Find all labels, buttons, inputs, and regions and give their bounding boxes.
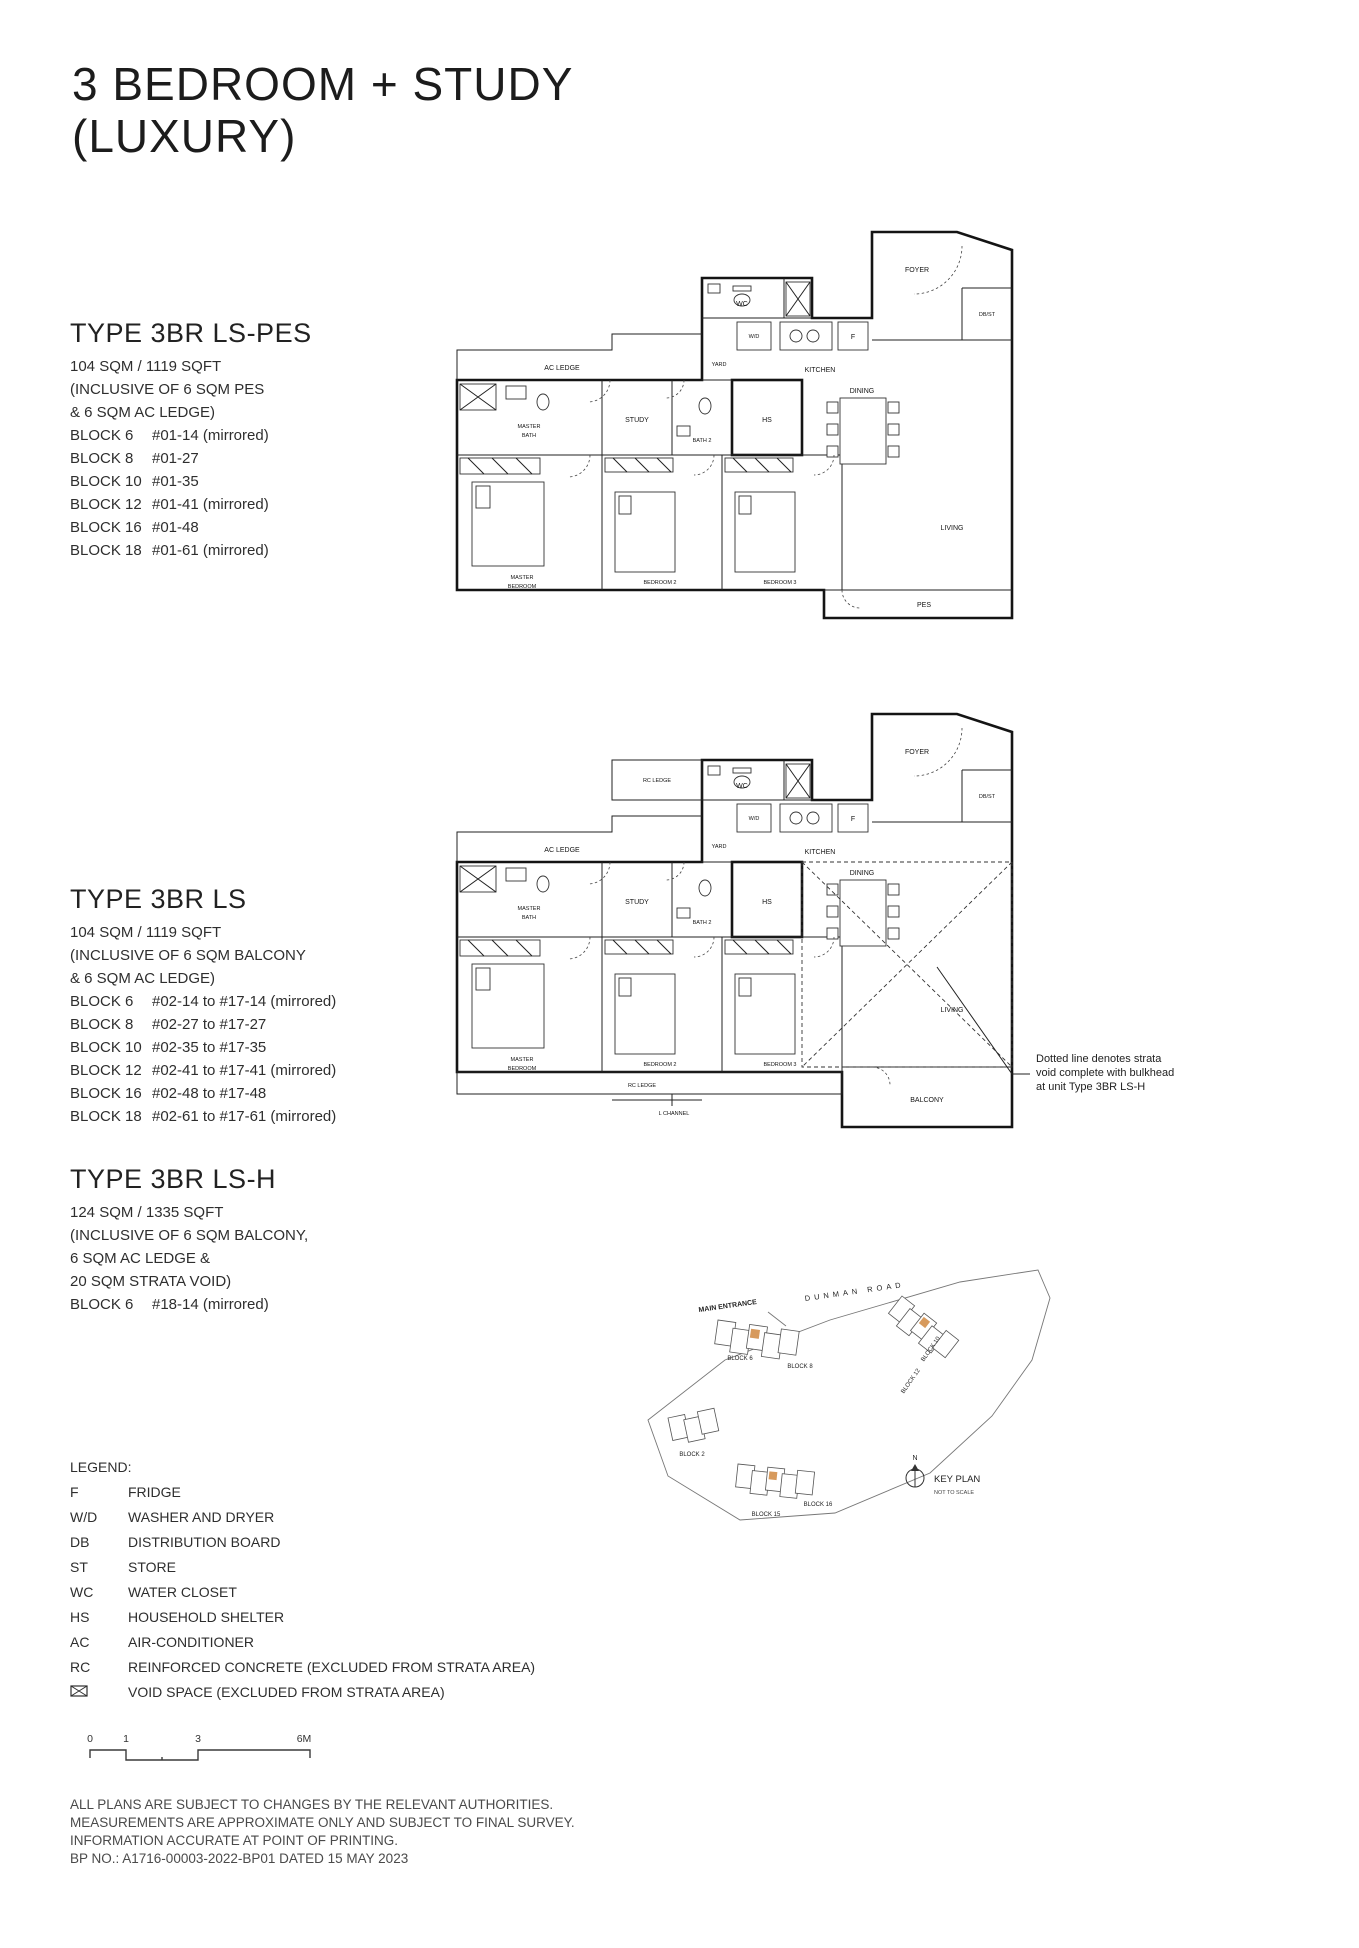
outer-walls — [457, 714, 1012, 1127]
room-label-wd: W/D — [749, 334, 760, 340]
block-row: BLOCK 16#02-48 to #17-48 — [70, 1082, 400, 1105]
room-label-master-bath: BATH — [522, 433, 536, 439]
keyplan-block-8: BLOCK 8 — [787, 1364, 813, 1370]
room-label-balcony: BALCONY — [910, 1097, 944, 1104]
block-row: BLOCK 10#02-35 to #17-35 — [70, 1036, 400, 1059]
type-info-3br-ls-pes: TYPE 3BR LS-PES 104 SQM / 1119 SQFT (INC… — [70, 318, 400, 562]
floorplan-drawing-3br-ls-pes: WC W/D F KITCHEN YARD FOYER DB/ST AC LED… — [372, 230, 1012, 622]
keyplan-block-12: BLOCK 12 — [900, 1367, 922, 1394]
room-label-hs: HS — [762, 899, 772, 906]
type-name: TYPE 3BR LS-PES — [70, 318, 400, 349]
room-label-yard: YARD — [712, 362, 727, 368]
room-label-wc: WC — [736, 783, 748, 790]
block-row: BLOCK 6#02-14 to #17-14 (mirrored) — [70, 990, 400, 1013]
page-title-line2: (LUXURY) — [72, 110, 573, 162]
legend-row: HSHOUSEHOLD SHELTER — [70, 1605, 535, 1630]
legend-row: ACAIR-CONDITIONER — [70, 1630, 535, 1655]
room-label-ac-ledge: AC LEDGE — [544, 365, 580, 372]
room-label-rc-ledge-bottom: RC LEDGE — [628, 1083, 656, 1089]
disclaimer: ALL PLANS ARE SUBJECT TO CHANGES BY THE … — [70, 1796, 575, 1868]
room-label-master-bedroom: BEDROOM — [508, 584, 537, 590]
room-label-rc-ledge-top: RC LEDGE — [643, 778, 671, 784]
scale-bar: 0 1 3 6M — [82, 1730, 342, 1775]
block-cluster-15-16 — [735, 1464, 815, 1500]
room-label-bath2: BATH 2 — [693, 438, 712, 444]
keyplan-block-6: BLOCK 6 — [727, 1356, 753, 1362]
room-label-dbst: DB/ST — [979, 794, 996, 800]
room-label-living: LIVING — [941, 525, 964, 532]
room-label-dbst: DB/ST — [979, 312, 996, 318]
road-label: DUNMAN ROAD — [804, 1280, 905, 1303]
type-inclusive-line: 6 SQM AC LEDGE & — [70, 1247, 400, 1270]
legend-row: STSTORE — [70, 1555, 535, 1580]
keyplan-title: KEY PLAN — [934, 1474, 980, 1485]
scale-tick-label: 1 — [123, 1733, 129, 1745]
keyplan-block-16: BLOCK 16 — [804, 1502, 833, 1508]
legend-row: RCREINFORCED CONCRETE (EXCLUDED FROM STR… — [70, 1655, 535, 1680]
room-label-hs: HS — [762, 417, 772, 424]
room-label-master-bath: MASTER — [518, 906, 541, 912]
room-label-study: STUDY — [625, 899, 649, 906]
type-info-3br-ls: TYPE 3BR LS 104 SQM / 1119 SQFT (INCLUSI… — [70, 884, 400, 1128]
room-label-study: STUDY — [625, 417, 649, 424]
room-label-dining: DINING — [850, 388, 875, 395]
type-area: 104 SQM / 1119 SQFT — [70, 921, 400, 944]
page-title: 3 BEDROOM + STUDY (LUXURY) — [72, 58, 573, 162]
type-inclusive-line: (INCLUSIVE OF 6 SQM BALCONY — [70, 944, 400, 967]
entrance-arrow — [768, 1312, 786, 1326]
room-label-master-bedroom: MASTER — [511, 1057, 534, 1063]
block-cluster-10-12 — [885, 1296, 958, 1362]
room-label-bedroom2: BEDROOM 2 — [643, 1062, 676, 1068]
type-inclusive-line: & 6 SQM AC LEDGE) — [70, 967, 400, 990]
block-row: BLOCK 8#01-27 — [70, 447, 400, 470]
room-label-fridge: F — [851, 816, 855, 823]
scale-tick-label: 3 — [195, 1733, 201, 1745]
room-label-dining: DINING — [850, 870, 875, 877]
main-entrance-label: MAIN ENTRANCE — [698, 1299, 757, 1314]
disclaimer-line: INFORMATION ACCURATE AT POINT OF PRINTIN… — [70, 1832, 575, 1850]
legend-row: FFRIDGE — [70, 1480, 535, 1505]
block-row: BLOCK 10#01-35 — [70, 470, 400, 493]
keyplan-block-15: BLOCK 15 — [752, 1512, 781, 1518]
room-label-kitchen: KITCHEN — [805, 849, 836, 856]
keyplan-block-2: BLOCK 2 — [679, 1452, 705, 1458]
room-label-yard: YARD — [712, 844, 727, 850]
page-title-line1: 3 BEDROOM + STUDY — [72, 58, 573, 110]
scale-tick-label: 0 — [87, 1733, 93, 1745]
key-plan: MAIN ENTRANCE DUNMAN ROAD BLOCK 6 BLOCK … — [630, 1268, 1060, 1540]
interior-walls — [457, 760, 1012, 1106]
keyplan-subtitle: NOT TO SCALE — [934, 1490, 974, 1496]
legend-title: LEGEND: — [70, 1455, 535, 1480]
room-label-kitchen: KITCHEN — [805, 367, 836, 374]
legend-row: WCWATER CLOSET — [70, 1580, 535, 1605]
room-label-wd: W/D — [749, 816, 760, 822]
room-label-l-channel: L CHANNEL — [659, 1111, 690, 1117]
highlighted-unit — [750, 1329, 760, 1339]
block-cluster-2 — [668, 1408, 720, 1445]
room-label-foyer: FOYER — [905, 267, 929, 274]
room-label-wc: WC — [736, 301, 748, 308]
type-area: 124 SQM / 1335 SQFT — [70, 1201, 400, 1224]
legend: LEGEND: FFRIDGE W/DWASHER AND DRYER DBDI… — [70, 1455, 535, 1705]
highlighted-unit — [769, 1471, 778, 1480]
type-area: 104 SQM / 1119 SQFT — [70, 355, 400, 378]
void-space-icon — [70, 1680, 128, 1705]
room-label-ac-ledge: AC LEDGE — [544, 847, 580, 854]
room-label-bedroom2: BEDROOM 2 — [643, 580, 676, 586]
room-label-pes: PES — [917, 602, 931, 609]
room-label-bedroom3: BEDROOM 3 — [763, 1062, 796, 1068]
disclaimer-line: ALL PLANS ARE SUBJECT TO CHANGES BY THE … — [70, 1796, 575, 1814]
type-name: TYPE 3BR LS-H — [70, 1164, 400, 1195]
room-label-master-bath: MASTER — [518, 424, 541, 430]
strata-void-annotation: Dotted line denotes strata void complete… — [1036, 1052, 1246, 1094]
scale-tick-label: 6M — [297, 1733, 312, 1745]
floorplan-drawing-3br-ls: RC LEDGE WC W/D F KITCHEN YARD FOYER DB/… — [372, 712, 1032, 1182]
type-info-3br-ls-h: TYPE 3BR LS-H 124 SQM / 1335 SQFT (INCLU… — [70, 1164, 400, 1316]
type-inclusive-line: 20 SQM STRATA VOID) — [70, 1270, 400, 1293]
room-label-living: LIVING — [941, 1007, 964, 1014]
type-inclusive-line: & 6 SQM AC LEDGE) — [70, 401, 400, 424]
type-inclusive-line: (INCLUSIVE OF 6 SQM PES — [70, 378, 400, 401]
floorplan-page: 3 BEDROOM + STUDY (LUXURY) TYPE 3BR LS-P… — [0, 0, 1359, 1948]
block-row: BLOCK 12#02-41 to #17-41 (mirrored) — [70, 1059, 400, 1082]
room-label-foyer: FOYER — [905, 749, 929, 756]
room-label-master-bedroom: BEDROOM — [508, 1066, 537, 1072]
type-inclusive-line: (INCLUSIVE OF 6 SQM BALCONY, — [70, 1224, 400, 1247]
legend-row-void: VOID SPACE (EXCLUDED FROM STRATA AREA) — [70, 1680, 535, 1705]
legend-row: DBDISTRIBUTION BOARD — [70, 1530, 535, 1555]
legend-row: W/DWASHER AND DRYER — [70, 1505, 535, 1530]
room-label-bedroom3: BEDROOM 3 — [763, 580, 796, 586]
block-row: BLOCK 8#02-27 to #17-27 — [70, 1013, 400, 1036]
room-label-master-bath: BATH — [522, 915, 536, 921]
block-cluster-6-8 — [714, 1320, 799, 1361]
room-label-master-bedroom: MASTER — [511, 575, 534, 581]
type-name: TYPE 3BR LS — [70, 884, 400, 915]
disclaimer-line: BP NO.: A1716-00003-2022-BP01 DATED 15 M… — [70, 1850, 575, 1868]
block-row: BLOCK 18#02-61 to #17-61 (mirrored) — [70, 1105, 400, 1128]
room-label-bath2: BATH 2 — [693, 920, 712, 926]
block-row: BLOCK 16#01-48 — [70, 516, 400, 539]
svg-text:N: N — [912, 1455, 917, 1462]
block-row: BLOCK 6#01-14 (mirrored) — [70, 424, 400, 447]
disclaimer-line: MEASUREMENTS ARE APPROXIMATE ONLY AND SU… — [70, 1814, 575, 1832]
room-label-fridge: F — [851, 334, 855, 341]
block-row: BLOCK 18#01-61 (mirrored) — [70, 539, 400, 562]
block-row: BLOCK 12#01-41 (mirrored) — [70, 493, 400, 516]
block-row: BLOCK 6#18-14 (mirrored) — [70, 1293, 400, 1316]
